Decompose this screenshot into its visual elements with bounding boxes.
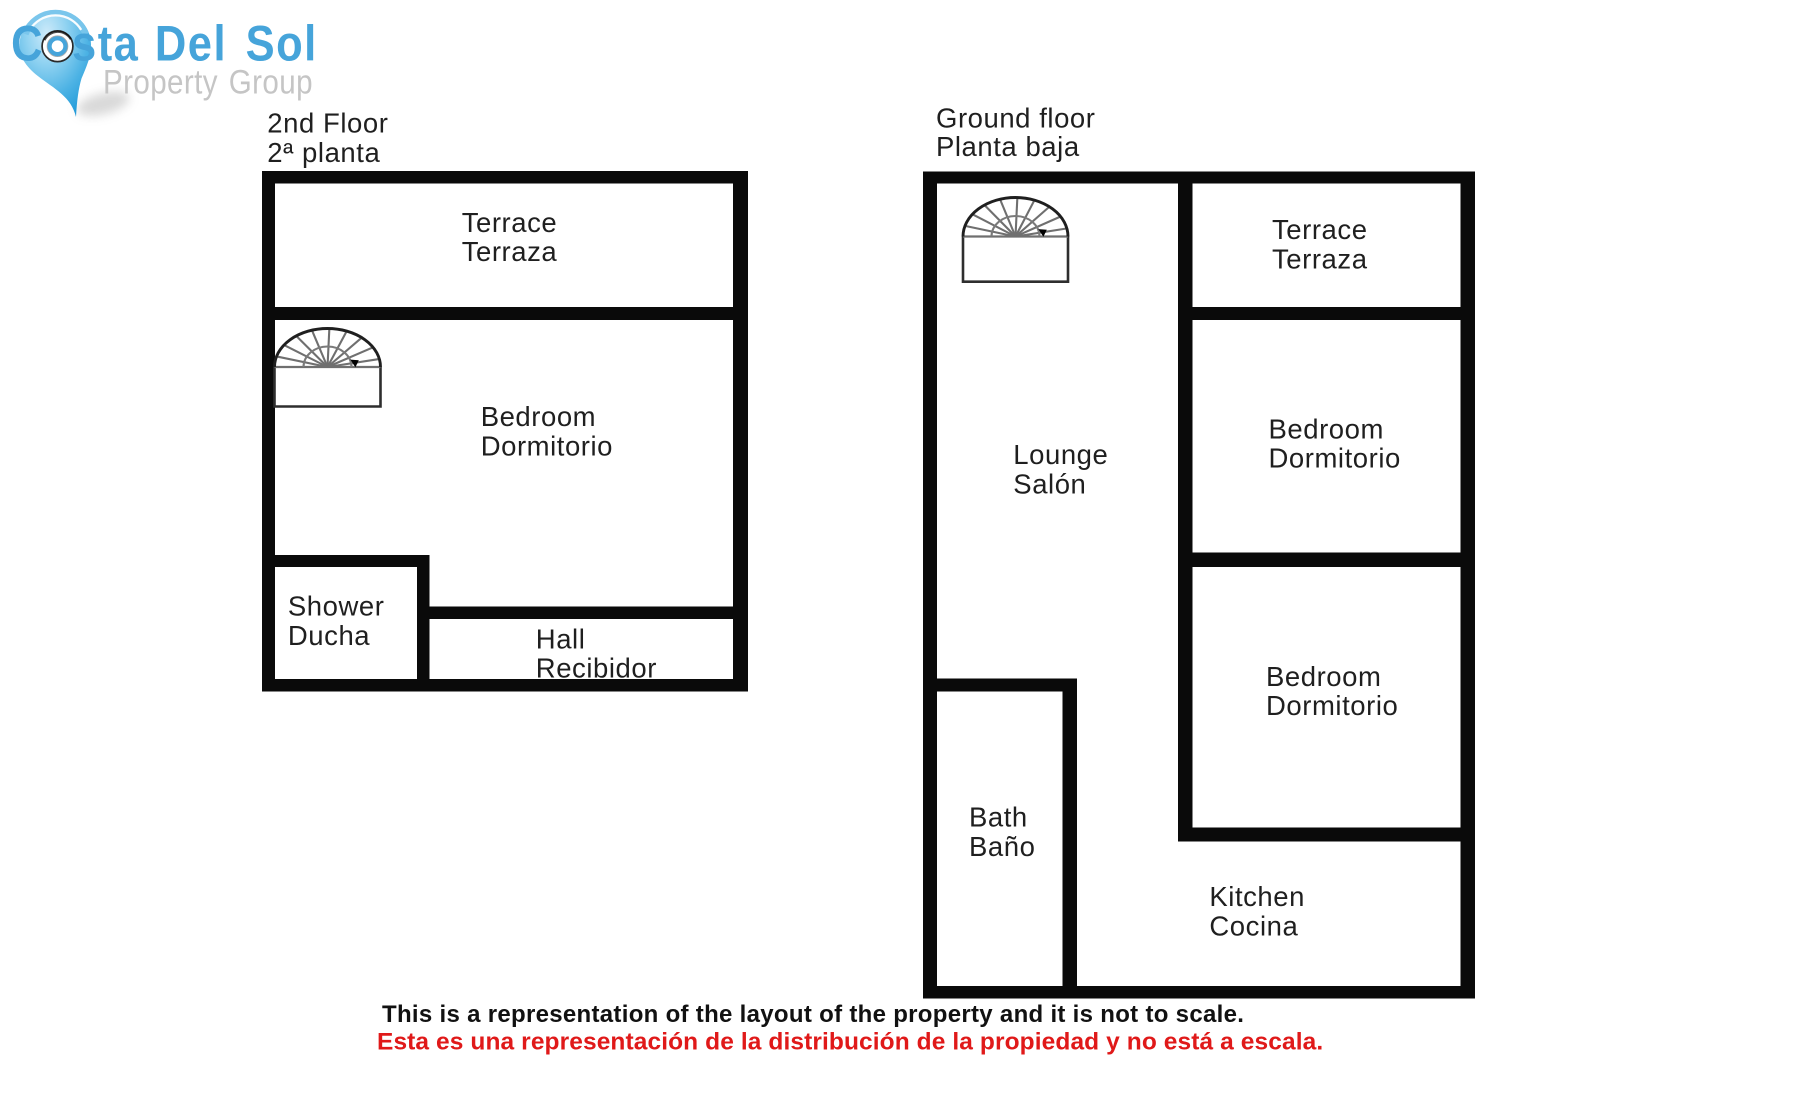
svg-text:Bedroom: Bedroom (1269, 413, 1384, 444)
svg-text:Dormitorio: Dormitorio (1266, 690, 1398, 721)
svg-text:2nd Floor: 2nd Floor (267, 108, 388, 139)
svg-text:Hall: Hall (536, 623, 586, 654)
svg-text:Recibidor: Recibidor (536, 653, 657, 684)
svg-text:Dormitorio: Dormitorio (1269, 443, 1401, 474)
svg-text:Kitchen: Kitchen (1209, 881, 1305, 912)
svg-text:Terrace: Terrace (1272, 214, 1368, 245)
svg-text:Salón: Salón (1013, 468, 1086, 499)
svg-text:Ground floor: Ground floor (936, 103, 1095, 134)
svg-text:Shower: Shower (288, 590, 385, 621)
svg-text:Bedroom: Bedroom (481, 401, 596, 432)
svg-text:Terraza: Terraza (462, 236, 558, 267)
svg-text:2ª planta: 2ª planta (267, 137, 380, 168)
svg-text:Planta baja: Planta baja (936, 131, 1080, 162)
svg-text:Esta es una representación de: Esta es una representación de la distrib… (377, 1029, 1323, 1056)
svg-text:Terrace: Terrace (462, 207, 558, 238)
svg-text:Dormitorio: Dormitorio (481, 430, 613, 461)
svg-text:Bedroom: Bedroom (1266, 661, 1381, 692)
svg-text:Baño: Baño (969, 831, 1035, 862)
svg-text:Cocina: Cocina (1209, 911, 1298, 942)
svg-text:This is a representation of th: This is a representation of the layout o… (382, 1001, 1244, 1028)
svg-text:Bath: Bath (969, 802, 1028, 833)
svg-text:Ducha: Ducha (288, 620, 370, 651)
svg-text:Property Group: Property Group (103, 63, 313, 101)
svg-text:Lounge: Lounge (1013, 439, 1108, 470)
svg-text:Terraza: Terraza (1272, 243, 1368, 274)
